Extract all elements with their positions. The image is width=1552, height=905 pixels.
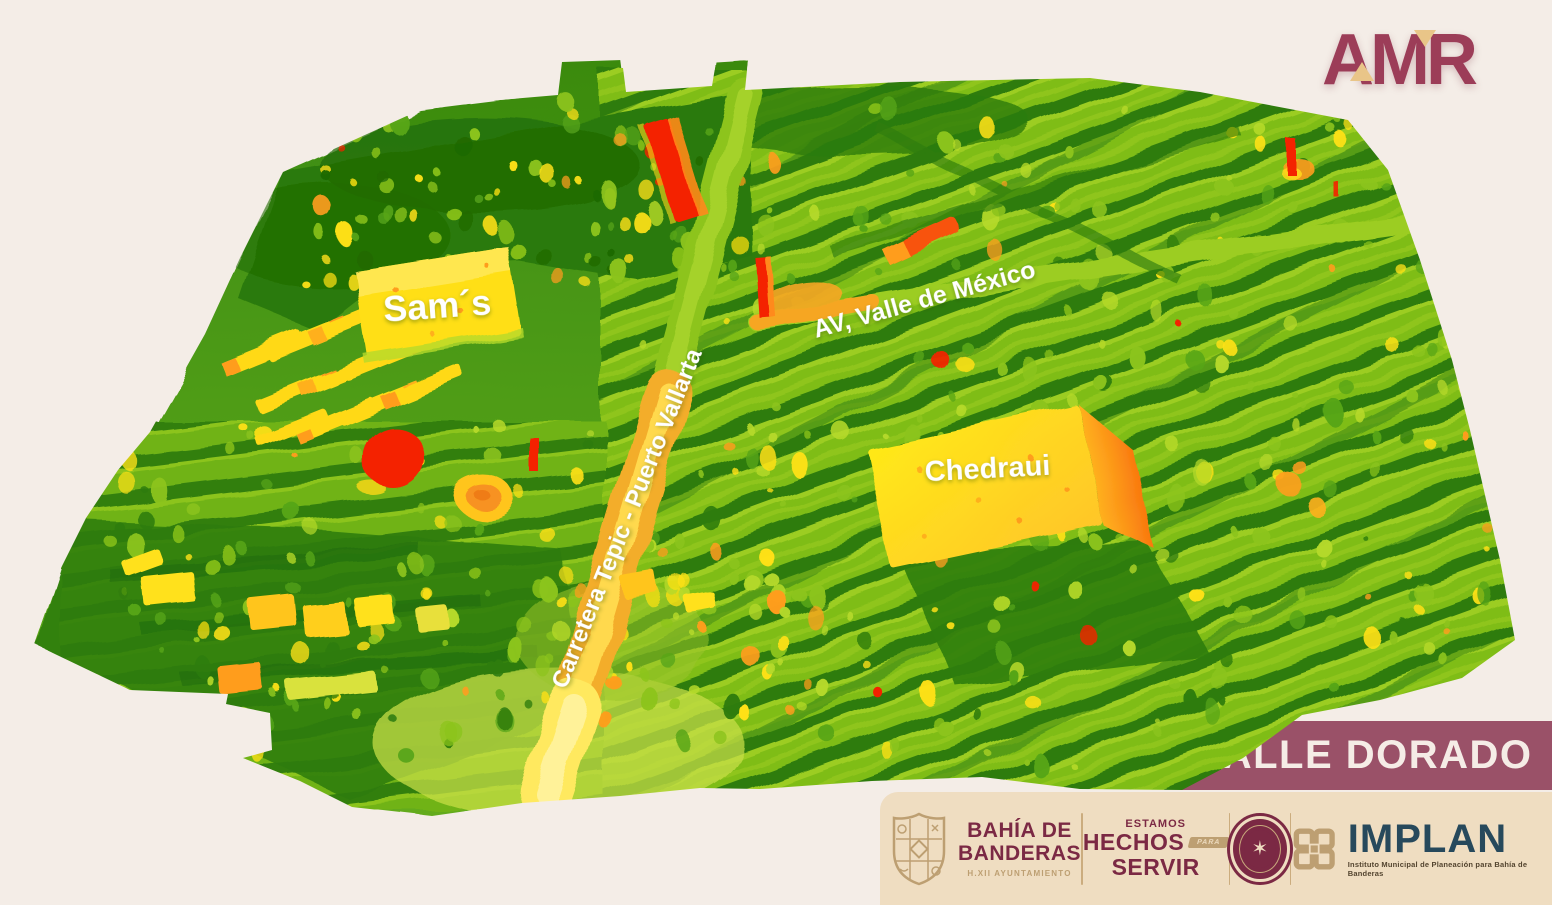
bahia-crest-icon xyxy=(890,811,948,887)
municipality-name-line2: BANDERAS xyxy=(958,842,1081,865)
round-emblem-icon: ✶ xyxy=(1230,816,1289,882)
implan-name: IMPLAN xyxy=(1348,820,1542,858)
amr-accent-m xyxy=(1414,30,1436,47)
slogan-block: ESTAMOS HECHOS PARA SERVIR xyxy=(1083,818,1229,880)
label-sams: Sam´s xyxy=(382,281,493,329)
crater-feature xyxy=(454,476,514,518)
emblem-glyph: ✶ xyxy=(1244,830,1275,868)
label-chedraui: Chedraui xyxy=(924,450,1051,489)
institutional-footer: BAHÍA DE BANDERAS H.XII AYUNTAMIENTO EST… xyxy=(880,792,1552,905)
slogan-line2: HECHOS xyxy=(1083,830,1184,855)
municipality-subtitle: H.XII AYUNTAMIENTO xyxy=(967,869,1071,878)
terrain-body xyxy=(34,60,1550,820)
slogan-line3: SERVIR xyxy=(1112,855,1200,880)
municipality-logo: BAHÍA DE BANDERAS H.XII AYUNTAMIENTO xyxy=(890,811,1081,887)
elevation-map: Sam´s Chedraui AV, Valle de México Carre… xyxy=(0,0,1552,905)
implan-logo: IMPLAN Instituto Municipal de Planeación… xyxy=(1291,820,1542,878)
slogan-line1: ESTAMOS xyxy=(1125,818,1186,830)
amr-accent-a xyxy=(1350,62,1374,81)
implan-tagline: Instituto Municipal de Planeación para B… xyxy=(1348,860,1542,878)
municipality-name-line1: BAHÍA DE xyxy=(967,819,1072,842)
slogan-tag: PARA xyxy=(1188,837,1230,848)
poster-canvas: VALLE DORADO xyxy=(0,0,1552,905)
amr-logo: AMR xyxy=(1322,22,1522,102)
implan-knot-icon xyxy=(1291,823,1337,875)
